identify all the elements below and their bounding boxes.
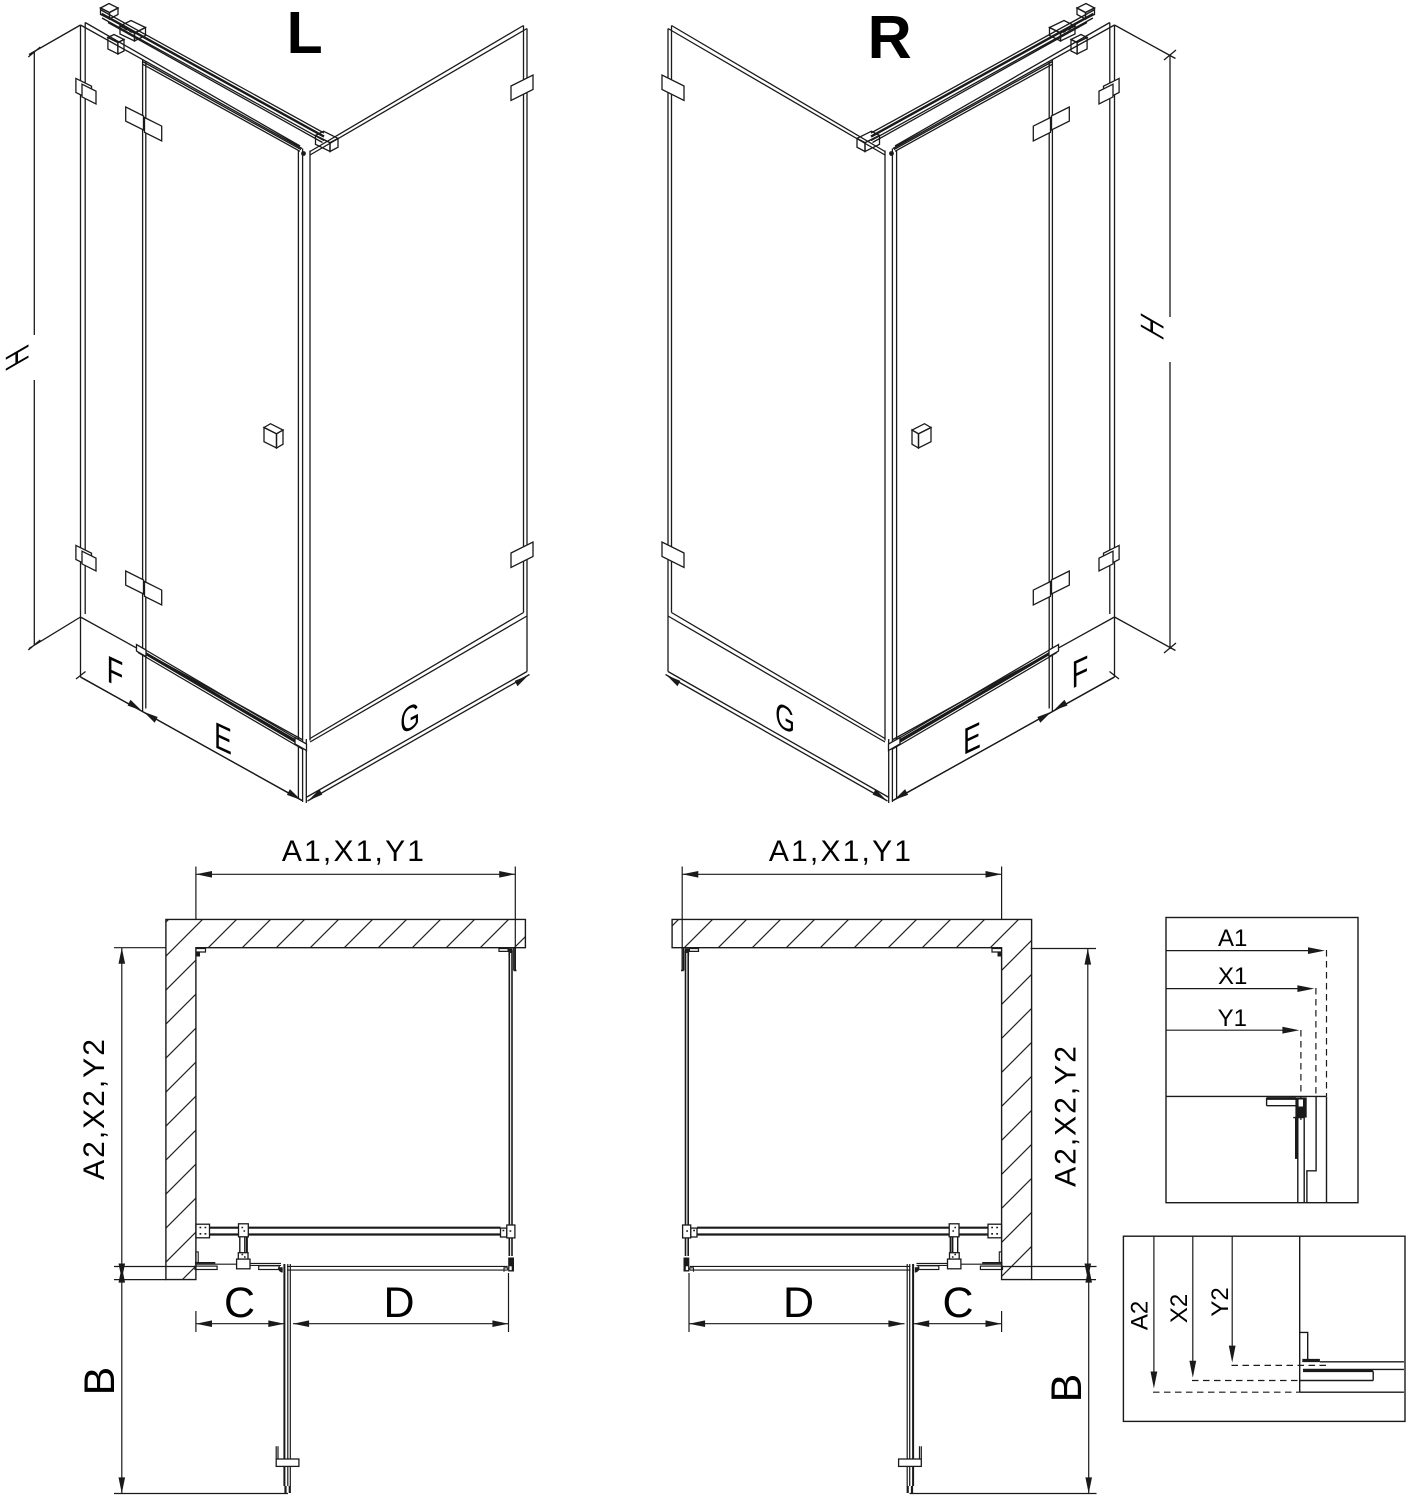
svg-text:R: R — [868, 3, 912, 71]
svg-text:L: L — [287, 0, 323, 66]
svg-text:D: D — [783, 1279, 814, 1327]
svg-text:Y2: Y2 — [1207, 1287, 1234, 1316]
svg-text:C: C — [224, 1279, 255, 1327]
svg-text:A2,X2,Y2: A2,X2,Y2 — [78, 1037, 111, 1180]
svg-text:E: E — [963, 715, 981, 764]
svg-text:D: D — [383, 1279, 414, 1327]
svg-text:X1: X1 — [1218, 963, 1247, 990]
svg-text:F: F — [1072, 648, 1089, 698]
svg-text:B: B — [1043, 1374, 1091, 1403]
svg-text:B: B — [76, 1367, 124, 1396]
svg-text:A1,X1,Y1: A1,X1,Y1 — [769, 835, 913, 868]
svg-text:F: F — [107, 648, 124, 698]
svg-text:A2,X2,Y2: A2,X2,Y2 — [1050, 1044, 1083, 1187]
svg-text:Y1: Y1 — [1218, 1005, 1247, 1032]
svg-text:C: C — [942, 1279, 973, 1327]
svg-text:A1: A1 — [1218, 925, 1247, 952]
svg-text:E: E — [214, 715, 232, 764]
svg-text:A1,X1,Y1: A1,X1,Y1 — [282, 835, 426, 868]
svg-text:A2: A2 — [1127, 1301, 1154, 1330]
svg-text:X2: X2 — [1166, 1294, 1193, 1323]
